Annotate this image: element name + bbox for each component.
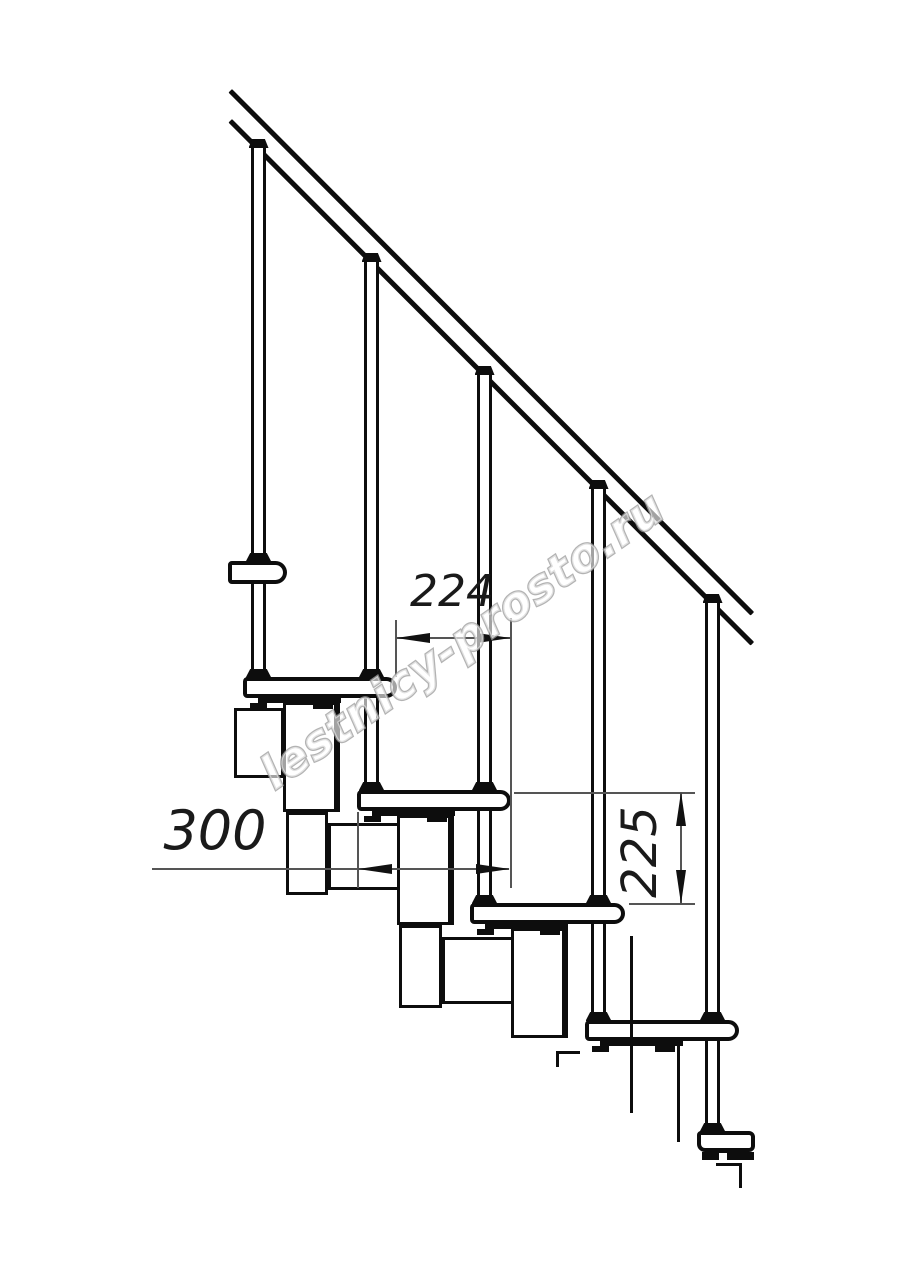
under-tread-strip — [702, 1152, 754, 1160]
support-module-box — [442, 937, 517, 1004]
tread — [470, 903, 625, 924]
break-line — [556, 1051, 580, 1054]
dimension-arrow — [676, 870, 686, 904]
mount-tab — [477, 929, 494, 935]
dimension-label-depth: 300 — [156, 804, 274, 858]
baluster-foot-cap — [246, 553, 272, 562]
watermark: lestnicy-prosto.ru — [242, 470, 681, 811]
baluster-foot-cap — [586, 1012, 612, 1021]
break-line — [556, 1051, 559, 1067]
baluster-foot-cap — [700, 1012, 726, 1021]
dimension-line — [152, 868, 509, 870]
extension-line — [510, 618, 512, 888]
mount-tab — [592, 1046, 609, 1052]
mount-tab — [655, 1046, 675, 1052]
mount-tab — [250, 703, 267, 709]
floor-bracket — [697, 1131, 755, 1152]
baluster-foot-cap — [586, 895, 612, 904]
support-module-box — [286, 812, 328, 895]
floor-bracket-notch — [719, 1153, 727, 1160]
baluster-foot-cap — [359, 782, 385, 791]
tread — [585, 1020, 739, 1041]
support-module-box — [399, 925, 442, 1008]
baluster — [251, 147, 266, 677]
baluster-foot-cap — [700, 1123, 726, 1132]
baluster-foot-cap — [246, 669, 272, 678]
support-module-box — [397, 815, 454, 925]
mount-tab — [427, 816, 447, 822]
break-line — [677, 1041, 680, 1142]
dimension-arrow — [476, 864, 510, 874]
floor-contour-line — [739, 1163, 742, 1188]
support-module-box — [511, 928, 568, 1038]
extension-line — [357, 812, 359, 888]
mount-tab — [540, 929, 560, 935]
tread — [357, 790, 511, 811]
tread — [228, 561, 287, 584]
dimension-line — [514, 792, 695, 794]
baluster-foot-cap — [472, 895, 498, 904]
break-line — [630, 936, 633, 1113]
baluster-foot-cap — [472, 782, 498, 791]
dimension-arrow — [676, 792, 686, 826]
staircase-drawing: 224 300 225 lestnicy-prosto.ru — [0, 0, 914, 1280]
dimension-arrow — [358, 864, 392, 874]
baluster — [705, 602, 720, 1131]
mount-tab — [364, 816, 381, 822]
dimension-label-rise: 225 — [616, 790, 664, 914]
support-module-box — [328, 823, 403, 890]
